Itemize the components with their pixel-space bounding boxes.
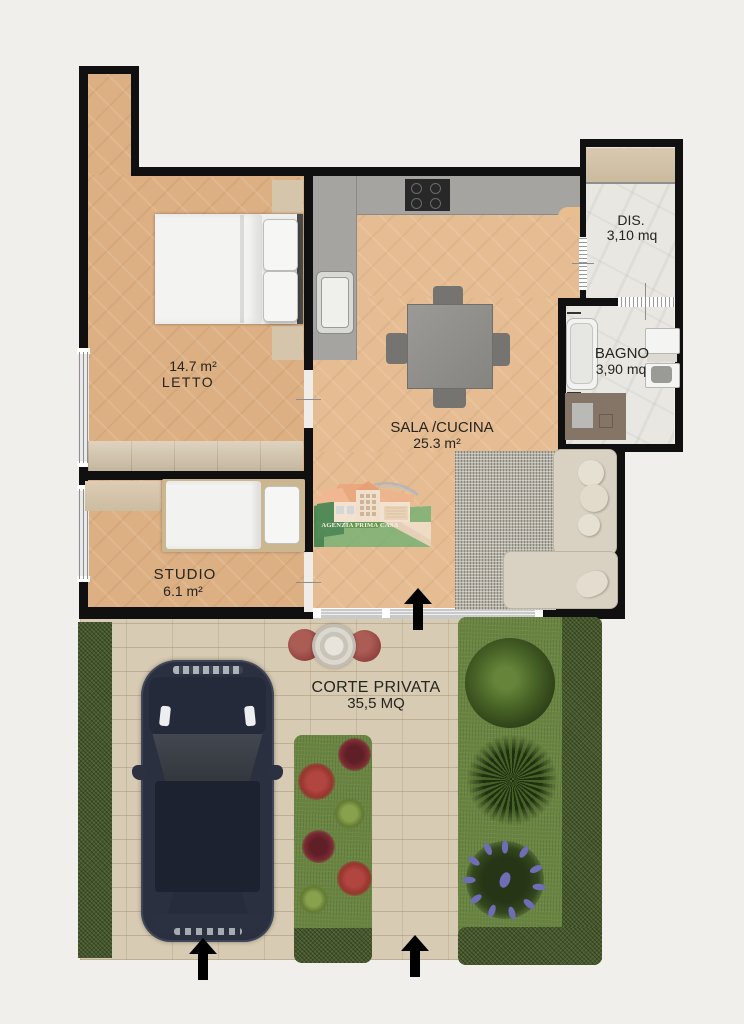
svg-text:AGENZIA PRIMA CASA: AGENZIA PRIMA CASA (321, 522, 398, 529)
